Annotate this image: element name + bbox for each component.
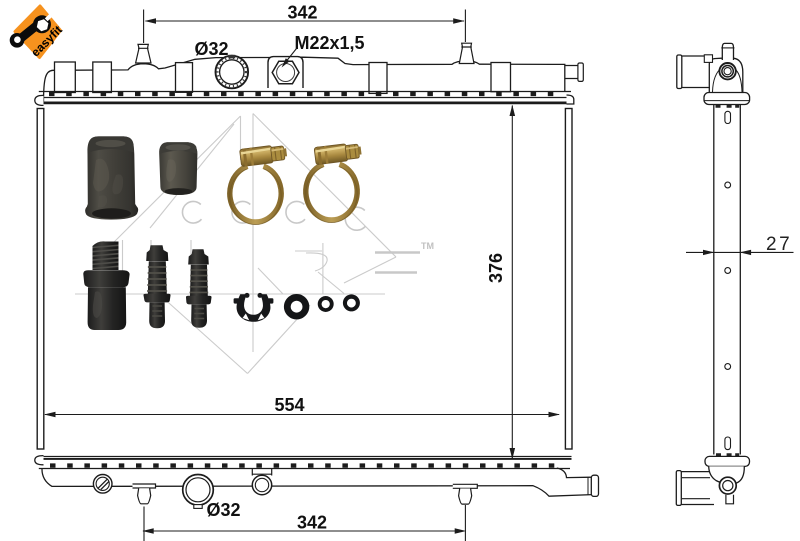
svg-text:342: 342 [297, 513, 327, 533]
svg-text:27: 27 [766, 234, 792, 255]
svg-text:Ø32: Ø32 [207, 500, 241, 520]
svg-text:342: 342 [287, 2, 317, 22]
svg-text:TM: TM [421, 241, 434, 251]
svg-text:Ø32: Ø32 [195, 39, 229, 59]
svg-text:554: 554 [274, 395, 304, 415]
svg-text:376: 376 [486, 253, 506, 283]
svg-text:M22x1,5: M22x1,5 [295, 33, 365, 53]
